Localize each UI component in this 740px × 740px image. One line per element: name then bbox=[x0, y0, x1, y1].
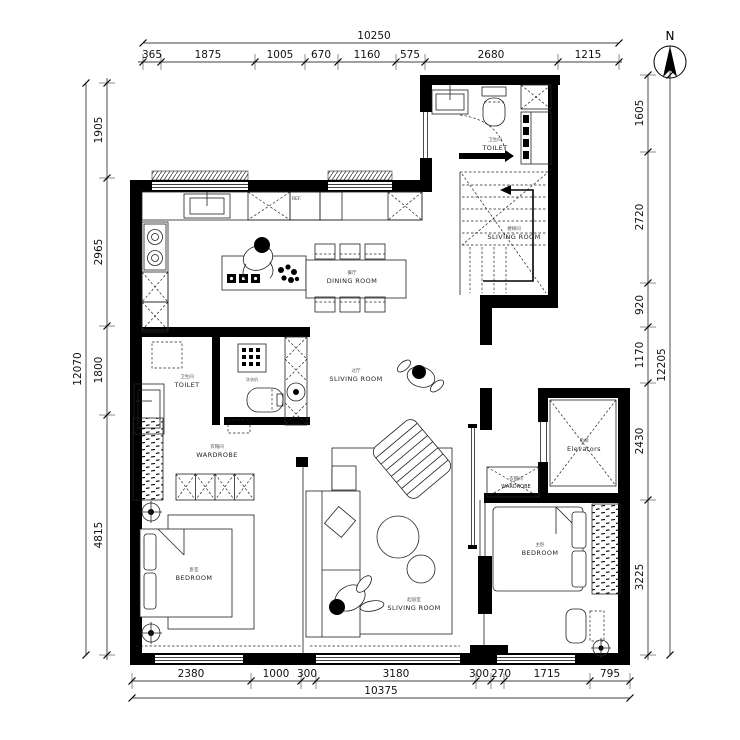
wardrobe-right bbox=[487, 467, 539, 497]
dim-right-seg: 2430 bbox=[634, 428, 646, 455]
dim-top-seg: 1160 bbox=[354, 49, 381, 61]
bed bbox=[140, 529, 232, 617]
dim-bottom-seg: 795 bbox=[600, 668, 620, 680]
bench bbox=[566, 609, 586, 643]
dim-bottom-total: 10375 bbox=[364, 685, 397, 697]
dim-top-seg: 575 bbox=[400, 49, 420, 61]
chair-dashed bbox=[590, 611, 604, 641]
north-arrow-icon: N bbox=[654, 29, 686, 78]
room-label-zh: 衣帽间 bbox=[210, 443, 224, 450]
bath-cabinet bbox=[521, 112, 551, 164]
room-label-zh: 楼梯间 bbox=[507, 225, 521, 232]
dim-top-total: 10250 bbox=[357, 30, 390, 42]
toilet-fixture bbox=[482, 87, 506, 126]
dim-right-total: 12205 bbox=[656, 348, 668, 381]
room-label-zh: 过厅 bbox=[352, 367, 361, 374]
dim-bottom-seg: 2380 bbox=[178, 668, 205, 680]
room-label-toilet-left: TOILET bbox=[173, 381, 199, 389]
floor-plan-canvas: 卫生间 TOILET 楼梯间 SLIVING ROOM 餐厅 DINING RO… bbox=[0, 0, 740, 740]
dim-left-seg: 1905 bbox=[93, 117, 105, 144]
ceiling-fan-icon bbox=[140, 501, 162, 523]
shelf-column bbox=[285, 337, 307, 425]
room-label-zh: 餐厅 bbox=[348, 269, 357, 276]
dim-top-seg: 1005 bbox=[267, 49, 294, 61]
dim-top-seg: 1875 bbox=[195, 49, 222, 61]
dim-top-seg: 670 bbox=[311, 49, 331, 61]
dim-left-seg: 2965 bbox=[93, 239, 105, 266]
dim-right-seg: 920 bbox=[634, 295, 646, 315]
dim-bottom-seg: 3180 bbox=[383, 668, 410, 680]
washing-machine bbox=[238, 344, 266, 372]
fridge-label: REF. bbox=[292, 196, 301, 202]
dim-right-seg: 3225 bbox=[634, 564, 646, 591]
room-label-zh: 起居室 bbox=[407, 596, 421, 603]
dim-right-seg: 2720 bbox=[634, 204, 646, 231]
dim-bottom-seg: 1000 bbox=[263, 668, 290, 680]
washer-label: 洗衣机 bbox=[246, 376, 258, 382]
living-room bbox=[303, 416, 477, 653]
dim-right-seg: 1170 bbox=[634, 342, 646, 369]
room-label-zh: 卫生间 bbox=[488, 136, 502, 143]
closet-strip bbox=[133, 418, 163, 500]
dim-left-total: 12070 bbox=[72, 352, 84, 385]
dim-top-seg: 1215 bbox=[575, 49, 602, 61]
room-label-wardrobe-left: WARDROBE bbox=[196, 451, 237, 459]
door-leaf bbox=[459, 153, 505, 159]
plant-icon bbox=[278, 264, 299, 283]
coffee-table bbox=[377, 516, 419, 558]
room-label-zh: 衣帽间 bbox=[509, 475, 523, 482]
dim-bottom-seg: 300 bbox=[297, 668, 317, 680]
room-label-zh: 电梯 bbox=[580, 437, 589, 444]
ceiling-fan-icon bbox=[140, 622, 162, 644]
room-label-hall: SLIVING ROOM bbox=[329, 375, 382, 383]
bedroom-right bbox=[480, 500, 620, 658]
bedroom-left bbox=[136, 515, 302, 646]
toilet-fixture bbox=[247, 388, 283, 412]
person-walking-icon bbox=[395, 358, 445, 394]
storage-bench bbox=[176, 474, 254, 500]
room-label-zh: 卧室 bbox=[190, 566, 199, 573]
dim-right-seg: 1605 bbox=[634, 100, 646, 127]
closet-strip bbox=[592, 504, 620, 594]
kitchen-sink bbox=[184, 192, 230, 218]
dim-left-seg: 4815 bbox=[93, 522, 105, 549]
room-label-bedroom-left: BEDROOM bbox=[176, 574, 213, 582]
north-label: N bbox=[666, 29, 675, 43]
room-label-stairwell: SLIVING ROOM bbox=[487, 233, 540, 241]
room-label-living: SLIVING ROOM bbox=[387, 604, 440, 612]
room-label-zh: 主卧 bbox=[536, 541, 545, 548]
room-label-elevator: Elevators bbox=[567, 445, 601, 453]
chaise-lounge bbox=[370, 416, 454, 501]
dim-top-seg: 2680 bbox=[478, 49, 505, 61]
dim-bottom-seg: 1715 bbox=[534, 668, 561, 680]
room-label-wardrobe-right: WARDROBE bbox=[501, 484, 530, 490]
dim-left-seg: 1800 bbox=[93, 357, 105, 384]
room-label-zh: 卫生间 bbox=[180, 373, 194, 380]
room-label-dining: DINING ROOM bbox=[327, 277, 377, 285]
room-label-bedroom-right: BEDROOM bbox=[522, 549, 559, 557]
wardrobe-left bbox=[133, 418, 254, 523]
person-standing-icon bbox=[240, 237, 276, 280]
room-label-toilet-top: TOILET bbox=[481, 144, 507, 152]
side-table bbox=[407, 555, 435, 583]
toilet-top bbox=[432, 84, 551, 164]
